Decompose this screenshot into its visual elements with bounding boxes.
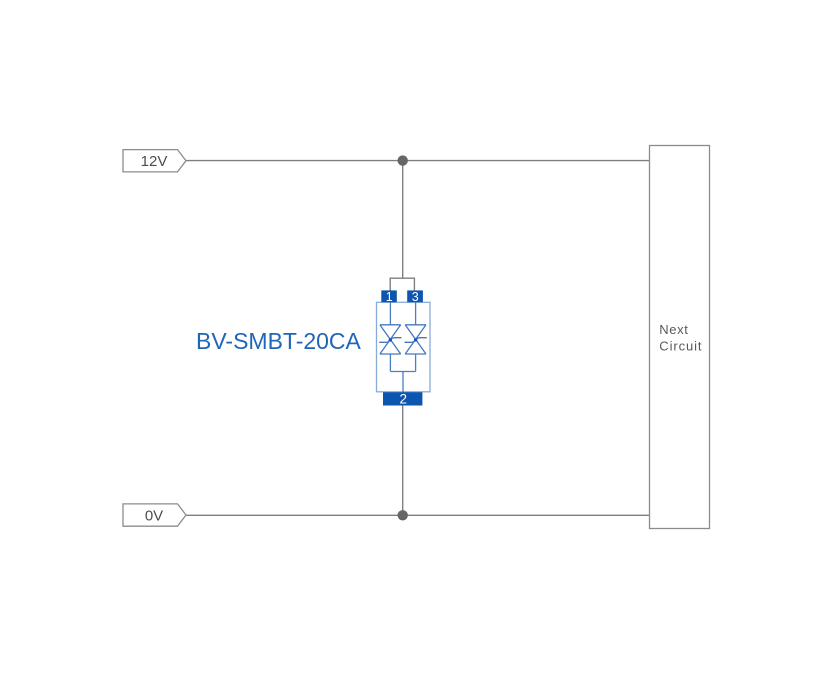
svg-text:12V: 12V — [141, 153, 168, 170]
svg-text:3: 3 — [412, 290, 419, 304]
svg-text:2: 2 — [400, 392, 408, 407]
svg-text:1: 1 — [386, 290, 393, 304]
svg-text:Circuit: Circuit — [659, 338, 702, 353]
svg-text:Next: Next — [659, 322, 688, 337]
svg-text:0V: 0V — [145, 507, 163, 524]
svg-text:BV-SMBT-20CA: BV-SMBT-20CA — [196, 328, 362, 354]
